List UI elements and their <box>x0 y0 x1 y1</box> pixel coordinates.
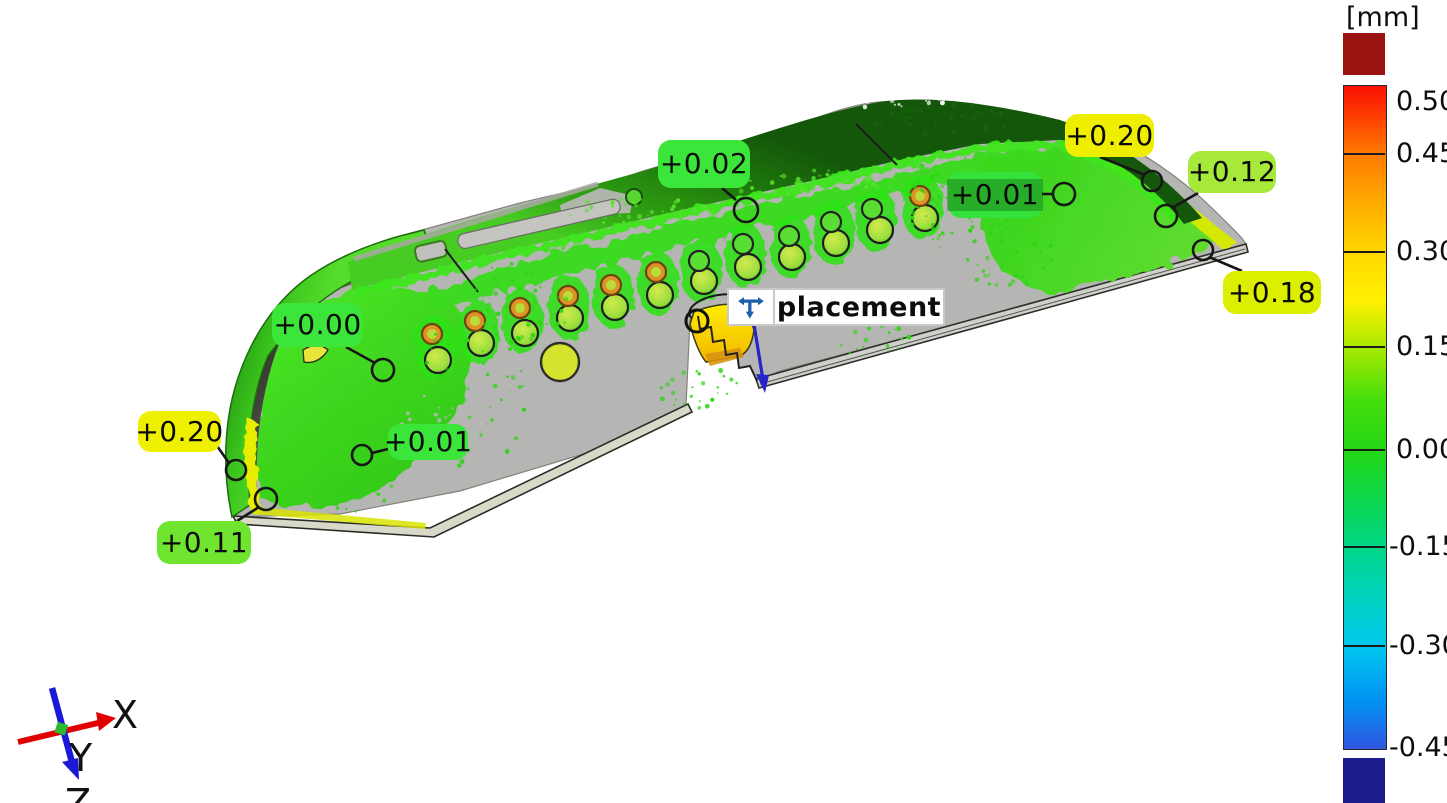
large-hole <box>541 343 579 381</box>
boss-hole <box>779 226 799 246</box>
leader-line <box>1209 257 1242 271</box>
clearance-hole <box>823 230 849 256</box>
deviation-label[interactable]: +0.12 <box>1188 151 1276 193</box>
z-axis-label: Z <box>65 781 91 803</box>
placement-move-icon <box>737 294 765 320</box>
deviation-label[interactable]: +0.02 <box>658 140 750 188</box>
deviation-value: +0.12 <box>1188 158 1276 186</box>
boss-hole <box>689 251 709 271</box>
clearance-hole <box>735 254 761 280</box>
boss-hole-center <box>606 280 616 290</box>
placement-label-text: placement <box>777 292 941 323</box>
color-scale-overflow-top[interactable] <box>1343 33 1385 75</box>
deviation-label[interactable]: +0.20 <box>138 411 221 452</box>
deviation-value: +0.02 <box>660 150 748 178</box>
clearance-hole <box>512 320 538 346</box>
color-scale-tick-label: 0.45 <box>1396 138 1447 169</box>
deviation-label[interactable]: +0.11 <box>157 521 251 564</box>
boss-hole <box>733 234 753 254</box>
deviation-label[interactable]: +0.00 <box>272 303 363 347</box>
deviation-label[interactable]: +0.18 <box>1223 271 1321 314</box>
color-scale-gradient-bar[interactable] <box>1343 85 1387 750</box>
color-scale-tick-label: -0.15 <box>1389 531 1447 562</box>
placement-icon-box[interactable] <box>727 288 775 326</box>
boss-hole-center <box>515 303 525 313</box>
deviation-value: +0.18 <box>1228 279 1316 307</box>
inspection-viewport: X Y Z placement [mm] 0.500.450.300.150.0… <box>0 0 1447 803</box>
deviation-value: +0.20 <box>1065 122 1153 150</box>
y-axis-label: Y <box>68 736 93 780</box>
color-scale-tick-line <box>1343 449 1385 451</box>
boss-hole <box>821 212 841 232</box>
deviation-value: +0.00 <box>273 311 361 339</box>
color-scale-tick-label: 0.15 <box>1396 331 1447 362</box>
color-scale-tick-line <box>1343 645 1385 647</box>
axis-triad[interactable]: X Y Z <box>18 688 138 803</box>
deviation-label[interactable]: +0.20 <box>1065 114 1154 157</box>
boss-hole <box>862 199 882 219</box>
model-3d-canvas[interactable]: X Y Z <box>0 0 1447 803</box>
clearance-hole <box>602 294 628 320</box>
boss-hole-center <box>651 267 661 277</box>
deviation-value: +0.11 <box>160 529 248 557</box>
x-axis-label: X <box>112 693 138 737</box>
clearance-hole <box>691 268 717 294</box>
deviation-label[interactable]: +0.01 <box>388 424 468 460</box>
color-scale-tick-line <box>1343 546 1385 548</box>
placement-label[interactable]: placement <box>773 288 945 326</box>
clearance-hole <box>912 205 938 231</box>
deviation-value: +0.01 <box>384 428 472 456</box>
color-scale-tick-label: -0.30 <box>1389 630 1447 661</box>
deviation-value: +0.01 <box>947 179 1043 211</box>
clearance-hole <box>867 217 893 243</box>
color-scale-unit-label: [mm] <box>1346 2 1420 33</box>
clearance-hole <box>468 330 494 356</box>
color-scale-overflow-bottom[interactable] <box>1343 758 1385 803</box>
color-scale-tick-label: 0.00 <box>1396 434 1447 465</box>
boss-hole-center <box>470 316 480 326</box>
color-scale-tick-line <box>1343 153 1385 155</box>
color-scale-tick-label: 0.50 <box>1396 86 1447 117</box>
clearance-hole <box>779 244 805 270</box>
color-scale-tick-line <box>1343 346 1385 348</box>
deviation-label[interactable]: +0.01 <box>948 172 1042 218</box>
deviation-value: +0.20 <box>135 418 223 446</box>
clearance-hole <box>557 305 583 331</box>
color-scale-tick-line <box>1343 251 1385 253</box>
color-scale-tick-label: -0.45 <box>1389 732 1447 763</box>
color-scale-tick-label: 0.30 <box>1396 236 1447 267</box>
clearance-hole <box>647 282 673 308</box>
